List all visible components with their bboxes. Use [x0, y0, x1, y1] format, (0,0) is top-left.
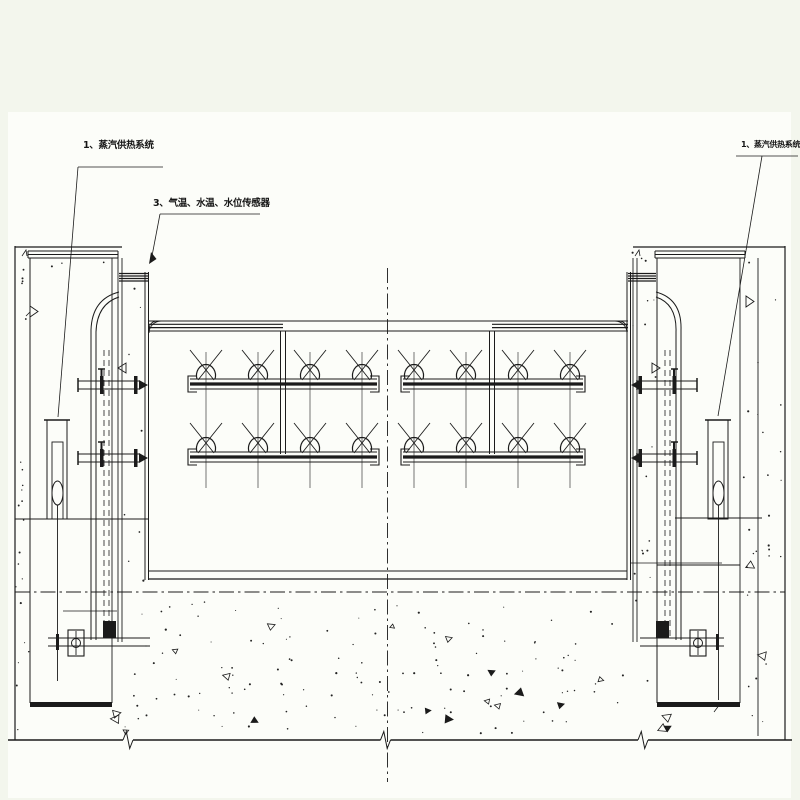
drawing-canvas: 1、蒸汽供热系统 3、气温、水温、水位传感器 1、蒸汽供热系统 [0, 0, 800, 800]
label-steam-supply-right: 1、蒸汽供热系统 [741, 141, 800, 149]
gate-engineering-drawing [0, 0, 800, 800]
label-steam-supply-left: 1、蒸汽供热系统 [83, 141, 154, 151]
label-temperature-water-level-sensors: 3、气温、水温、水位传感器 [153, 199, 270, 209]
